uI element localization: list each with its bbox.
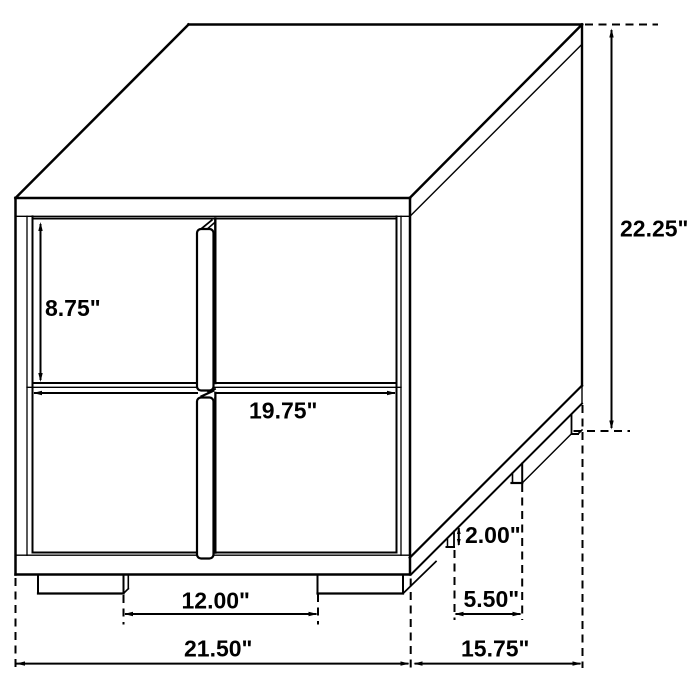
svg-text:19.75": 19.75"	[249, 398, 317, 424]
svg-text:2.00": 2.00"	[465, 522, 521, 548]
svg-text:12.00": 12.00"	[182, 588, 250, 614]
svg-text:22.25": 22.25"	[620, 216, 688, 242]
svg-text:5.50": 5.50"	[464, 586, 520, 612]
svg-text:8.75": 8.75"	[45, 295, 101, 321]
svg-text:21.50": 21.50"	[184, 636, 252, 662]
svg-text:15.75": 15.75"	[461, 636, 529, 662]
